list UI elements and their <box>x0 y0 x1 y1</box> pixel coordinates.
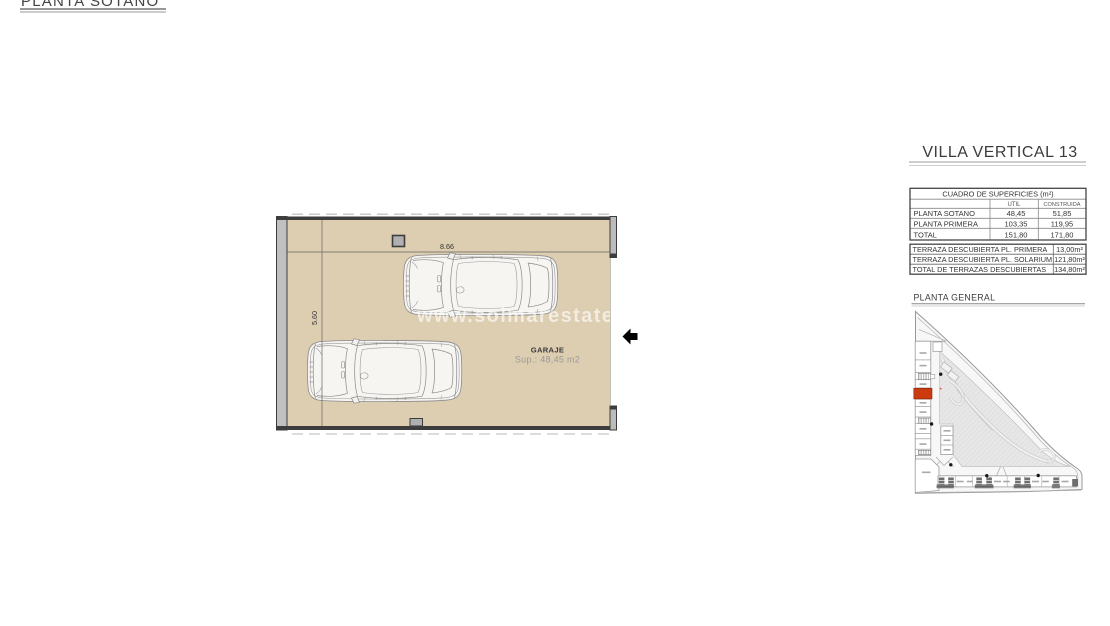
svg-text:TOTAL: TOTAL <box>914 230 937 239</box>
svg-text:51,85: 51,85 <box>1053 209 1072 218</box>
svg-text:TERRAZA DESCUBIERTA PL. SOLARI: TERRAZA DESCUBIERTA PL. SOLARIUM <box>913 255 1053 264</box>
svg-text:PLANTA PRIMERA: PLANTA PRIMERA <box>914 219 978 228</box>
svg-text:GARAJE: GARAJE <box>531 346 564 355</box>
svg-text:8.66: 8.66 <box>440 242 454 251</box>
svg-text:103,35: 103,35 <box>1005 219 1028 228</box>
svg-text:121,80m²: 121,80m² <box>1054 255 1085 264</box>
svg-text:PLANTA SOTANO: PLANTA SOTANO <box>914 209 976 218</box>
svg-text:48,45: 48,45 <box>1007 209 1026 218</box>
svg-text:5.60: 5.60 <box>310 311 319 325</box>
svg-text:CONSTRUIDA: CONSTRUIDA <box>1044 202 1081 208</box>
svg-text:CUADRO DE SUPERFICIES (m²): CUADRO DE SUPERFICIES (m²) <box>942 190 1053 199</box>
svg-text:UTIL: UTIL <box>1007 202 1021 208</box>
svg-text:TERRAZA DESCUBIERTA PL. PRIMER: TERRAZA DESCUBIERTA PL. PRIMERA <box>913 245 1048 254</box>
svg-text:171,80: 171,80 <box>1051 230 1074 239</box>
svg-text:13,00m²: 13,00m² <box>1056 245 1083 254</box>
svg-text:VILLA VERTICAL 13: VILLA VERTICAL 13 <box>922 144 1077 161</box>
svg-text:134,80m²: 134,80m² <box>1054 265 1085 274</box>
svg-text:www.solmarestate: www.solmarestate <box>416 305 614 327</box>
svg-text:Sup.: 48,45 m2: Sup.: 48,45 m2 <box>515 355 580 365</box>
svg-text:119,95: 119,95 <box>1051 219 1073 228</box>
svg-text:TOTAL DE TERRAZAS DESCUBIERTAS: TOTAL DE TERRAZAS DESCUBIERTAS <box>913 265 1047 274</box>
svg-text:PLANTA GENERAL: PLANTA GENERAL <box>914 293 996 303</box>
svg-text:151,80: 151,80 <box>1005 230 1028 239</box>
